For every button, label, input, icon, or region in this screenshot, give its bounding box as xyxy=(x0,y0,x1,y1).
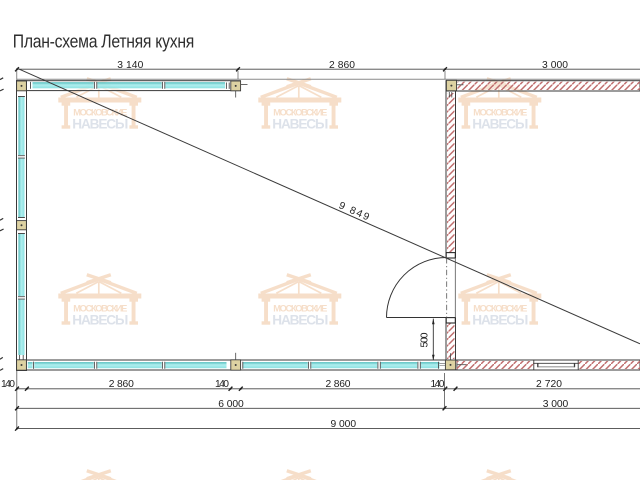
svg-text:140: 140 xyxy=(431,379,445,390)
svg-text:План-схема Летняя кухня: План-схема Летняя кухня xyxy=(13,30,194,52)
svg-text:2 720: 2 720 xyxy=(536,379,562,390)
svg-text:2 860: 2 860 xyxy=(329,60,355,71)
svg-text:2 860: 2 860 xyxy=(109,379,134,390)
svg-text:9 849: 9 849 xyxy=(337,200,371,223)
svg-text:140: 140 xyxy=(1,379,15,390)
svg-text:3 140: 3 140 xyxy=(117,60,143,71)
svg-text:140: 140 xyxy=(215,379,229,390)
svg-text:3 000: 3 000 xyxy=(543,399,569,410)
svg-text:2 860: 2 860 xyxy=(326,379,351,390)
svg-text:500: 500 xyxy=(419,332,430,347)
svg-text:6 000: 6 000 xyxy=(218,399,244,410)
svg-text:9 000: 9 000 xyxy=(331,419,357,430)
svg-text:3 000: 3 000 xyxy=(542,60,568,71)
